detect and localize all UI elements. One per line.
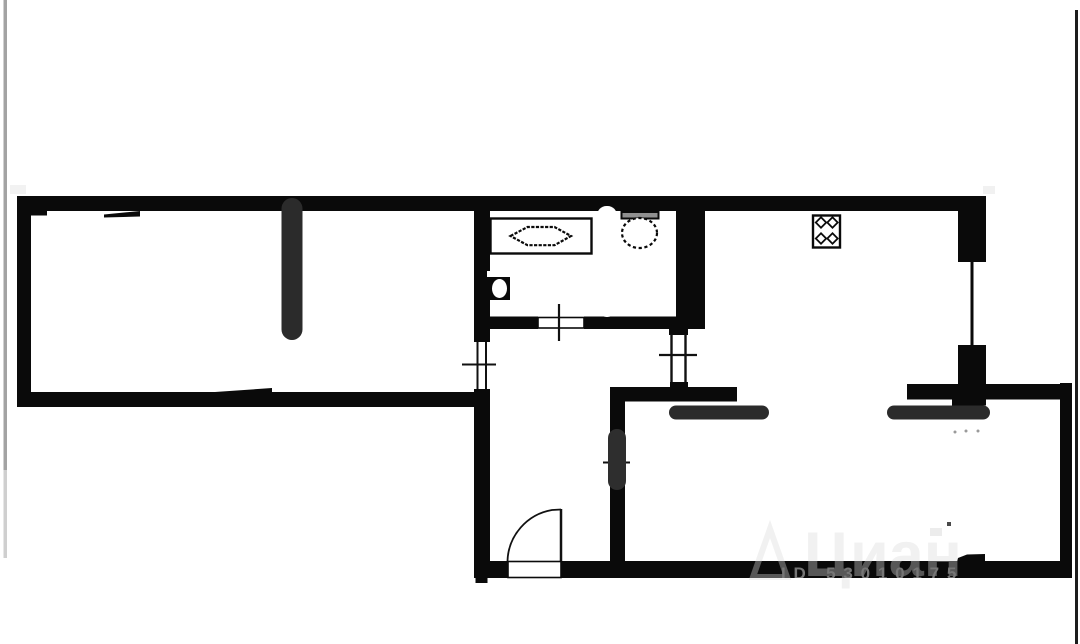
svg-text:ID 53010175: ID 53010175 (781, 564, 964, 583)
